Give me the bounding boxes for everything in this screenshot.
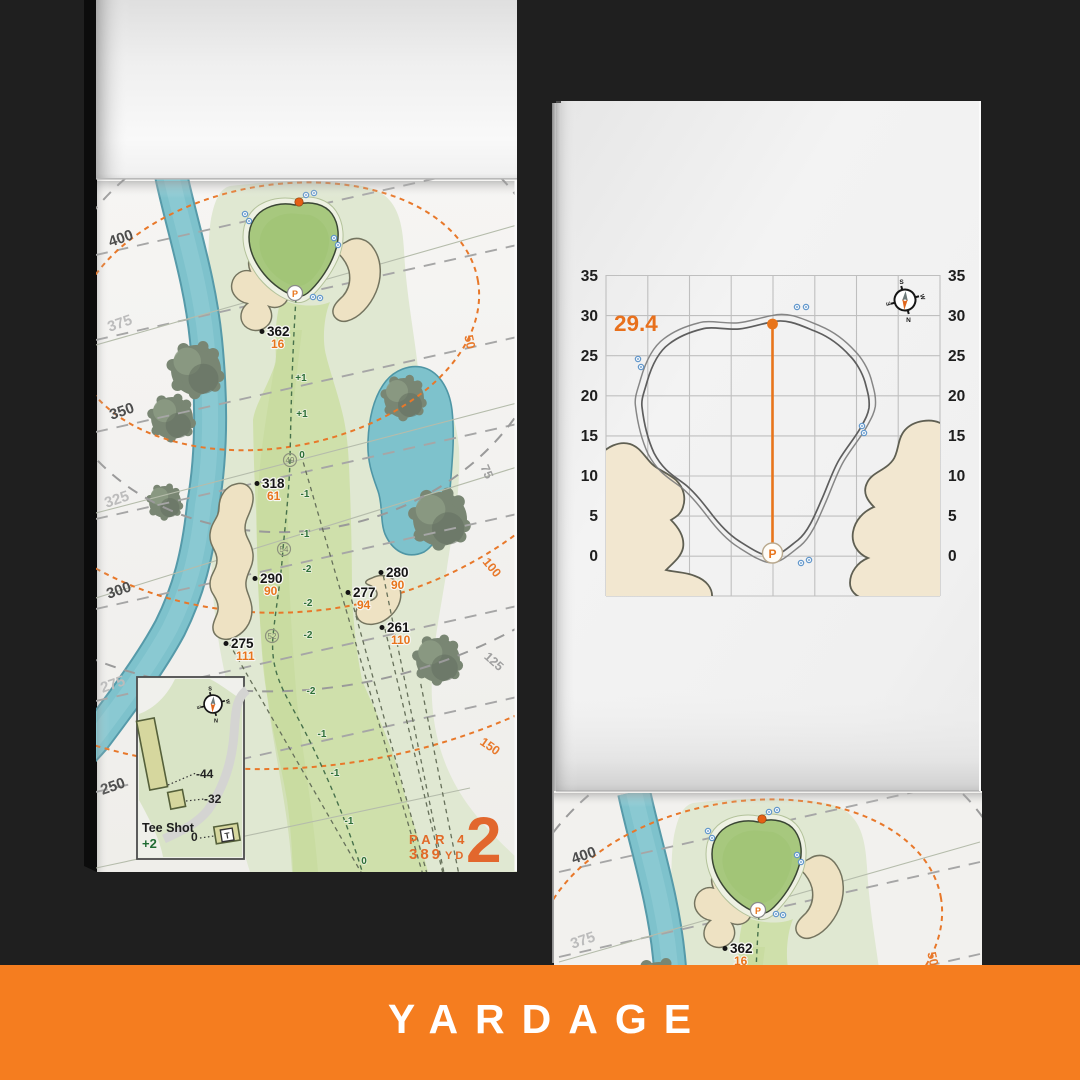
svg-text:10: 10 [948, 468, 965, 485]
svg-text:10: 10 [581, 468, 598, 485]
svg-text:35: 35 [581, 268, 599, 285]
svg-text:15: 15 [948, 428, 966, 445]
svg-text:15: 15 [581, 428, 599, 445]
svg-text:YARDAGE: YARDAGE [388, 996, 708, 1042]
svg-text:20: 20 [581, 388, 598, 405]
svg-text:30: 30 [581, 308, 598, 325]
svg-text:0: 0 [589, 548, 598, 565]
svg-text:5: 5 [589, 508, 598, 525]
svg-text:25: 25 [581, 348, 599, 365]
svg-text:29.4: 29.4 [614, 311, 658, 336]
svg-text:20: 20 [948, 388, 965, 405]
svg-text:25: 25 [948, 348, 966, 365]
svg-text:0: 0 [948, 548, 957, 565]
svg-text:30: 30 [948, 308, 965, 325]
svg-text:35: 35 [948, 268, 966, 285]
svg-text:P: P [768, 547, 776, 561]
svg-text:5: 5 [948, 508, 957, 525]
